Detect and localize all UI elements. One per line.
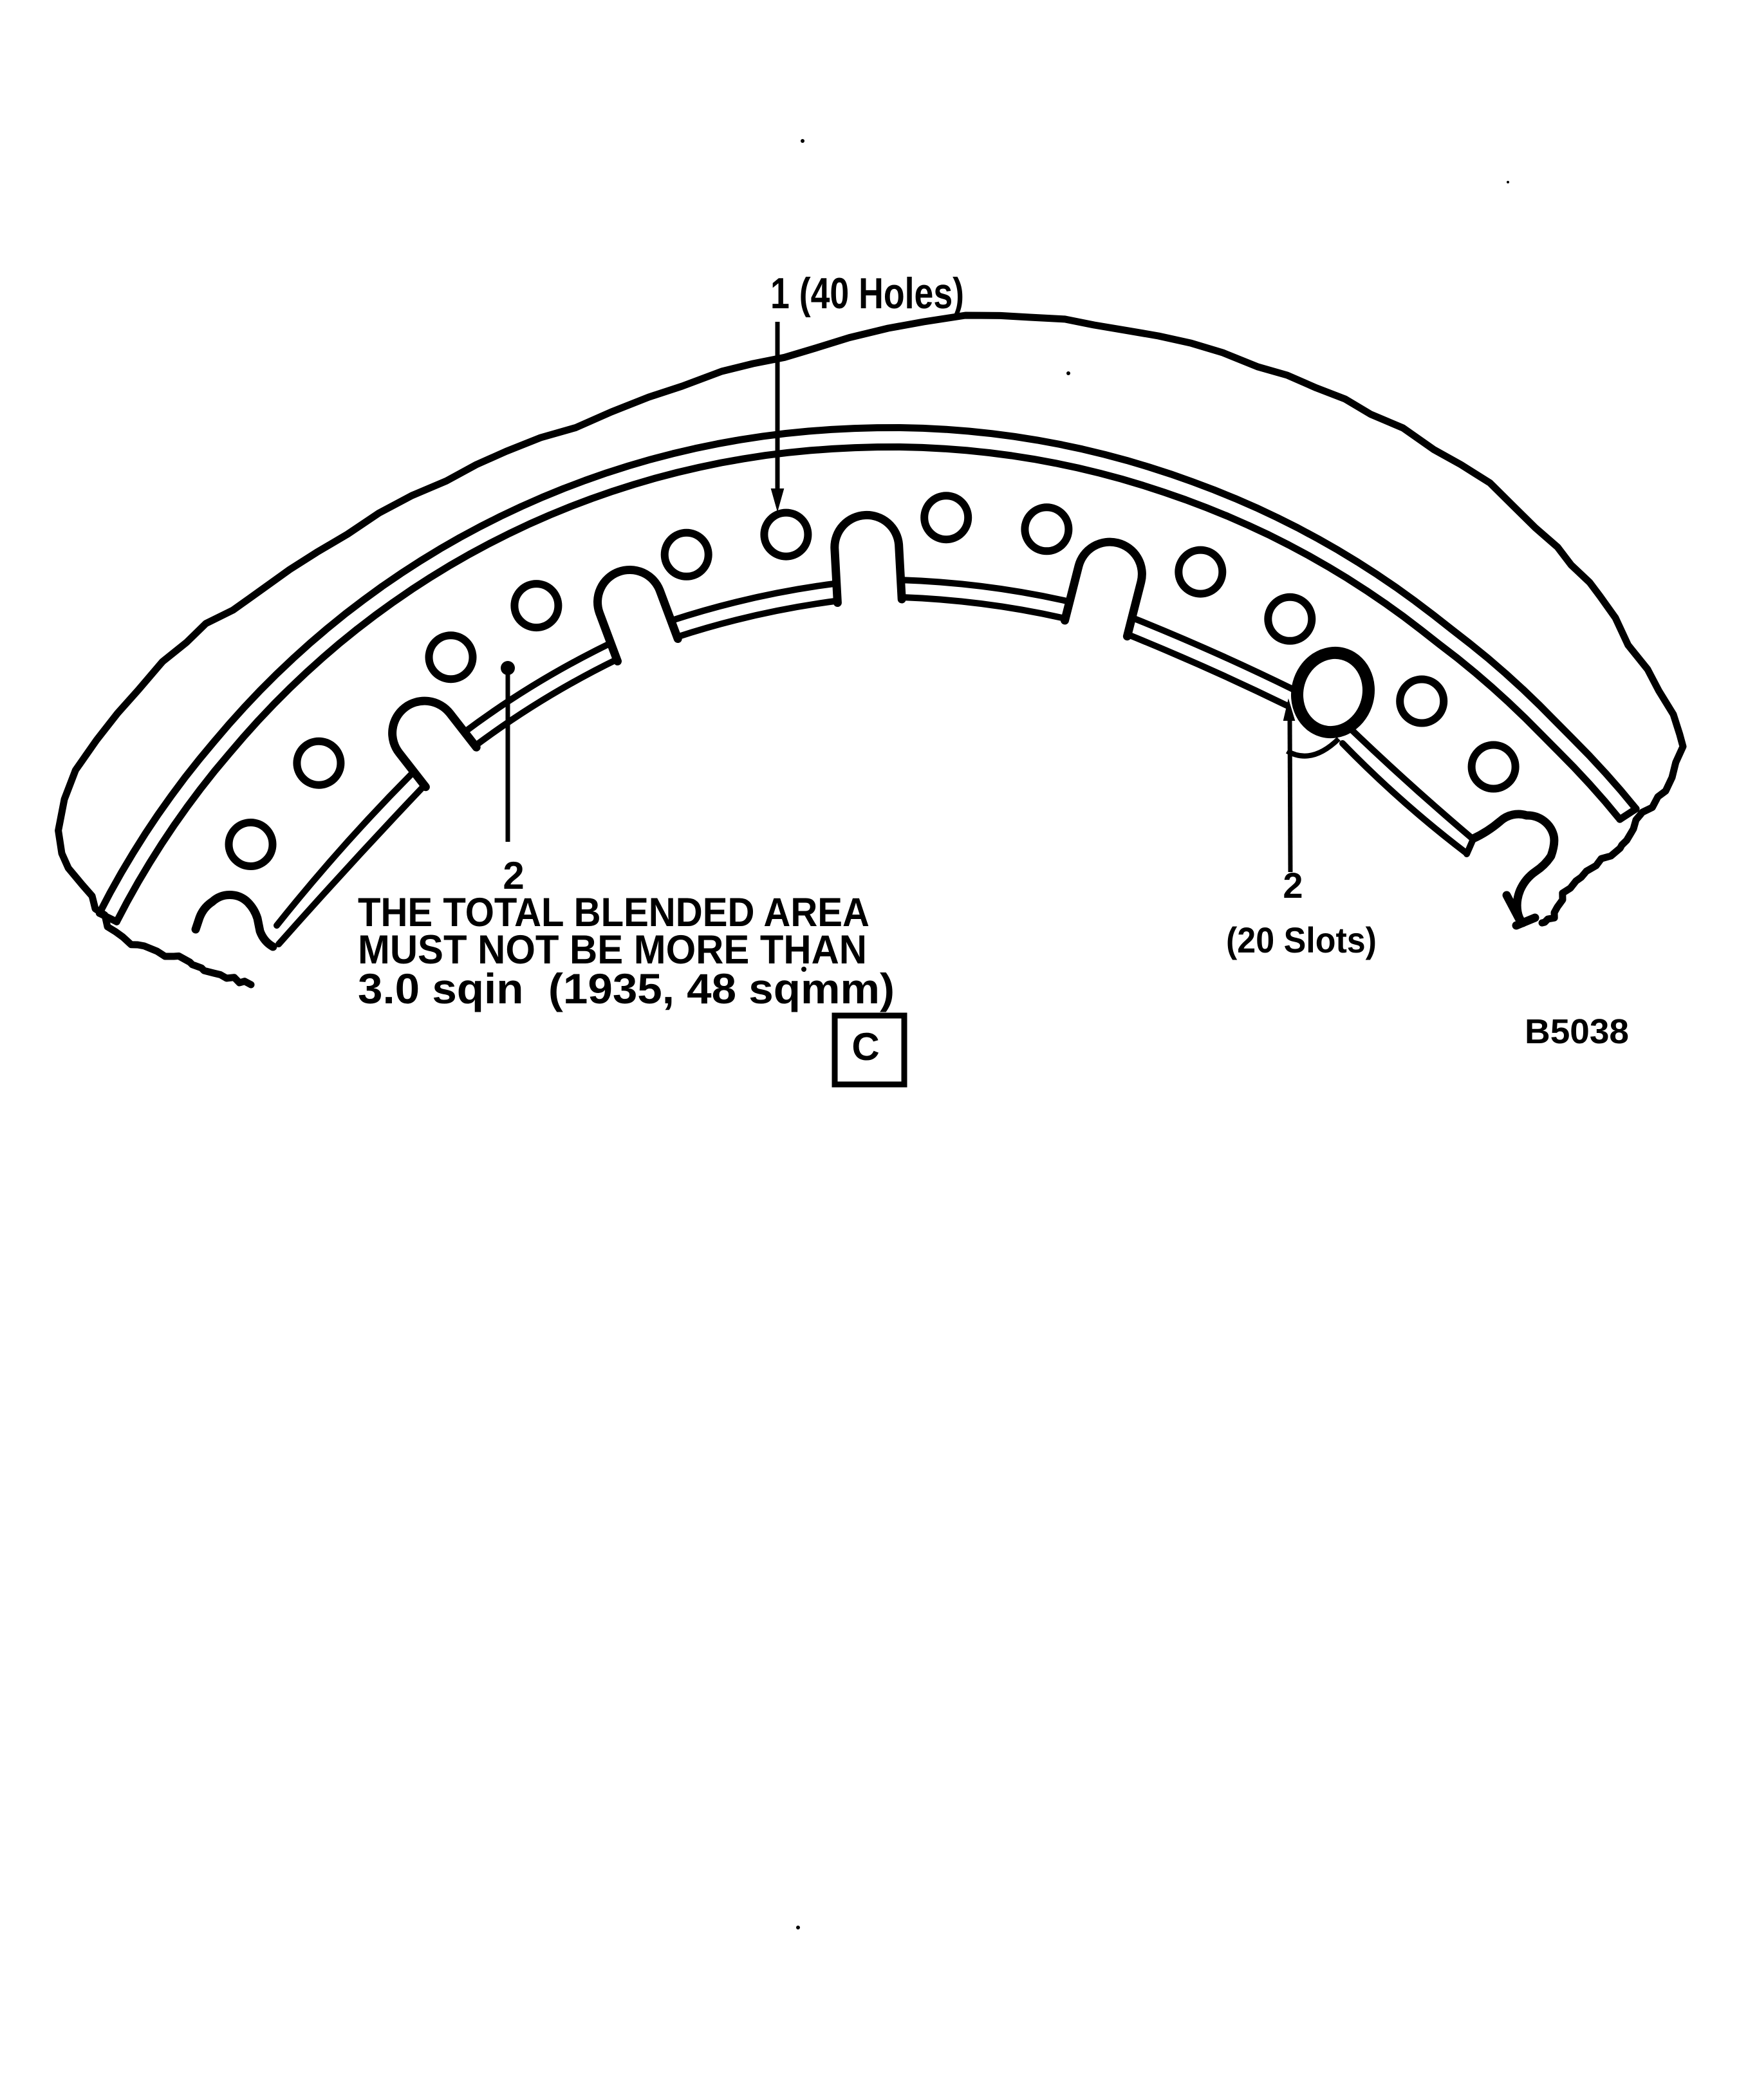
svg-text:B5038: B5038 — [1525, 1012, 1629, 1051]
svg-text:3.0 sqin (1935, 48 sqmm): 3.0 sqin (1935, 48 sqmm) — [358, 965, 895, 1012]
svg-text:1 (40 Holes): 1 (40 Holes) — [770, 269, 964, 318]
svg-text:2: 2 — [1283, 865, 1303, 906]
svg-text:(20 Slots): (20 Slots) — [1226, 920, 1377, 960]
svg-text:C: C — [851, 1025, 879, 1068]
